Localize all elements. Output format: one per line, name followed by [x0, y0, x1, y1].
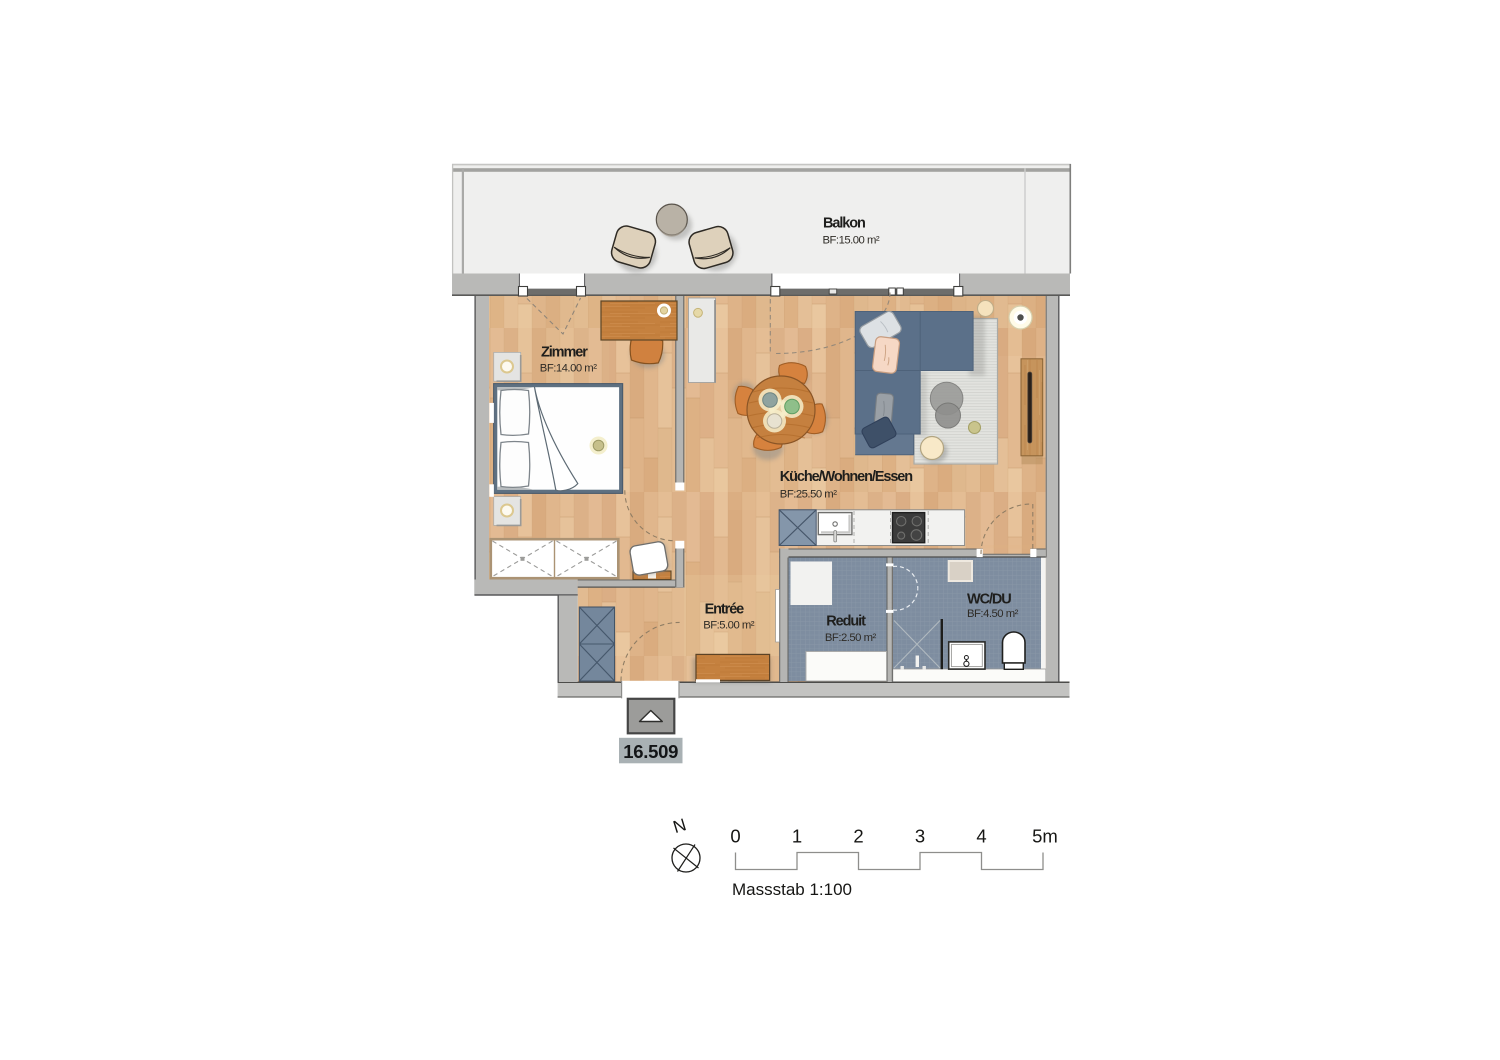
svg-text:0: 0 [730, 826, 740, 847]
svg-text:Entrée: Entrée [705, 601, 745, 617]
svg-text:N: N [671, 814, 689, 837]
svg-text:Zimmer: Zimmer [541, 345, 588, 361]
svg-text:BF:14.00 m²: BF:14.00 m² [540, 363, 597, 375]
svg-text:BF:5.00 m²: BF:5.00 m² [703, 620, 755, 632]
svg-text:Massstab 1:100: Massstab 1:100 [732, 880, 852, 899]
svg-text:WC/DU: WC/DU [967, 591, 1011, 607]
svg-text:Küche/Wohnen/Essen: Küche/Wohnen/Essen [780, 469, 912, 485]
svg-text:Balkon: Balkon [823, 215, 865, 231]
svg-text:BF:25.50 m²: BF:25.50 m² [780, 488, 837, 500]
svg-text:BF:15.00 m²: BF:15.00 m² [823, 235, 880, 247]
svg-text:16.509: 16.509 [623, 741, 678, 762]
svg-text:Reduit: Reduit [826, 614, 866, 630]
svg-text:3: 3 [915, 826, 925, 847]
svg-text:BF:4.50 m²: BF:4.50 m² [967, 608, 1019, 620]
svg-text:2: 2 [853, 826, 863, 847]
svg-text:1: 1 [792, 826, 802, 847]
svg-text:4: 4 [976, 826, 986, 847]
svg-text:5m: 5m [1032, 826, 1058, 847]
svg-text:BF:2.50 m²: BF:2.50 m² [825, 632, 877, 644]
